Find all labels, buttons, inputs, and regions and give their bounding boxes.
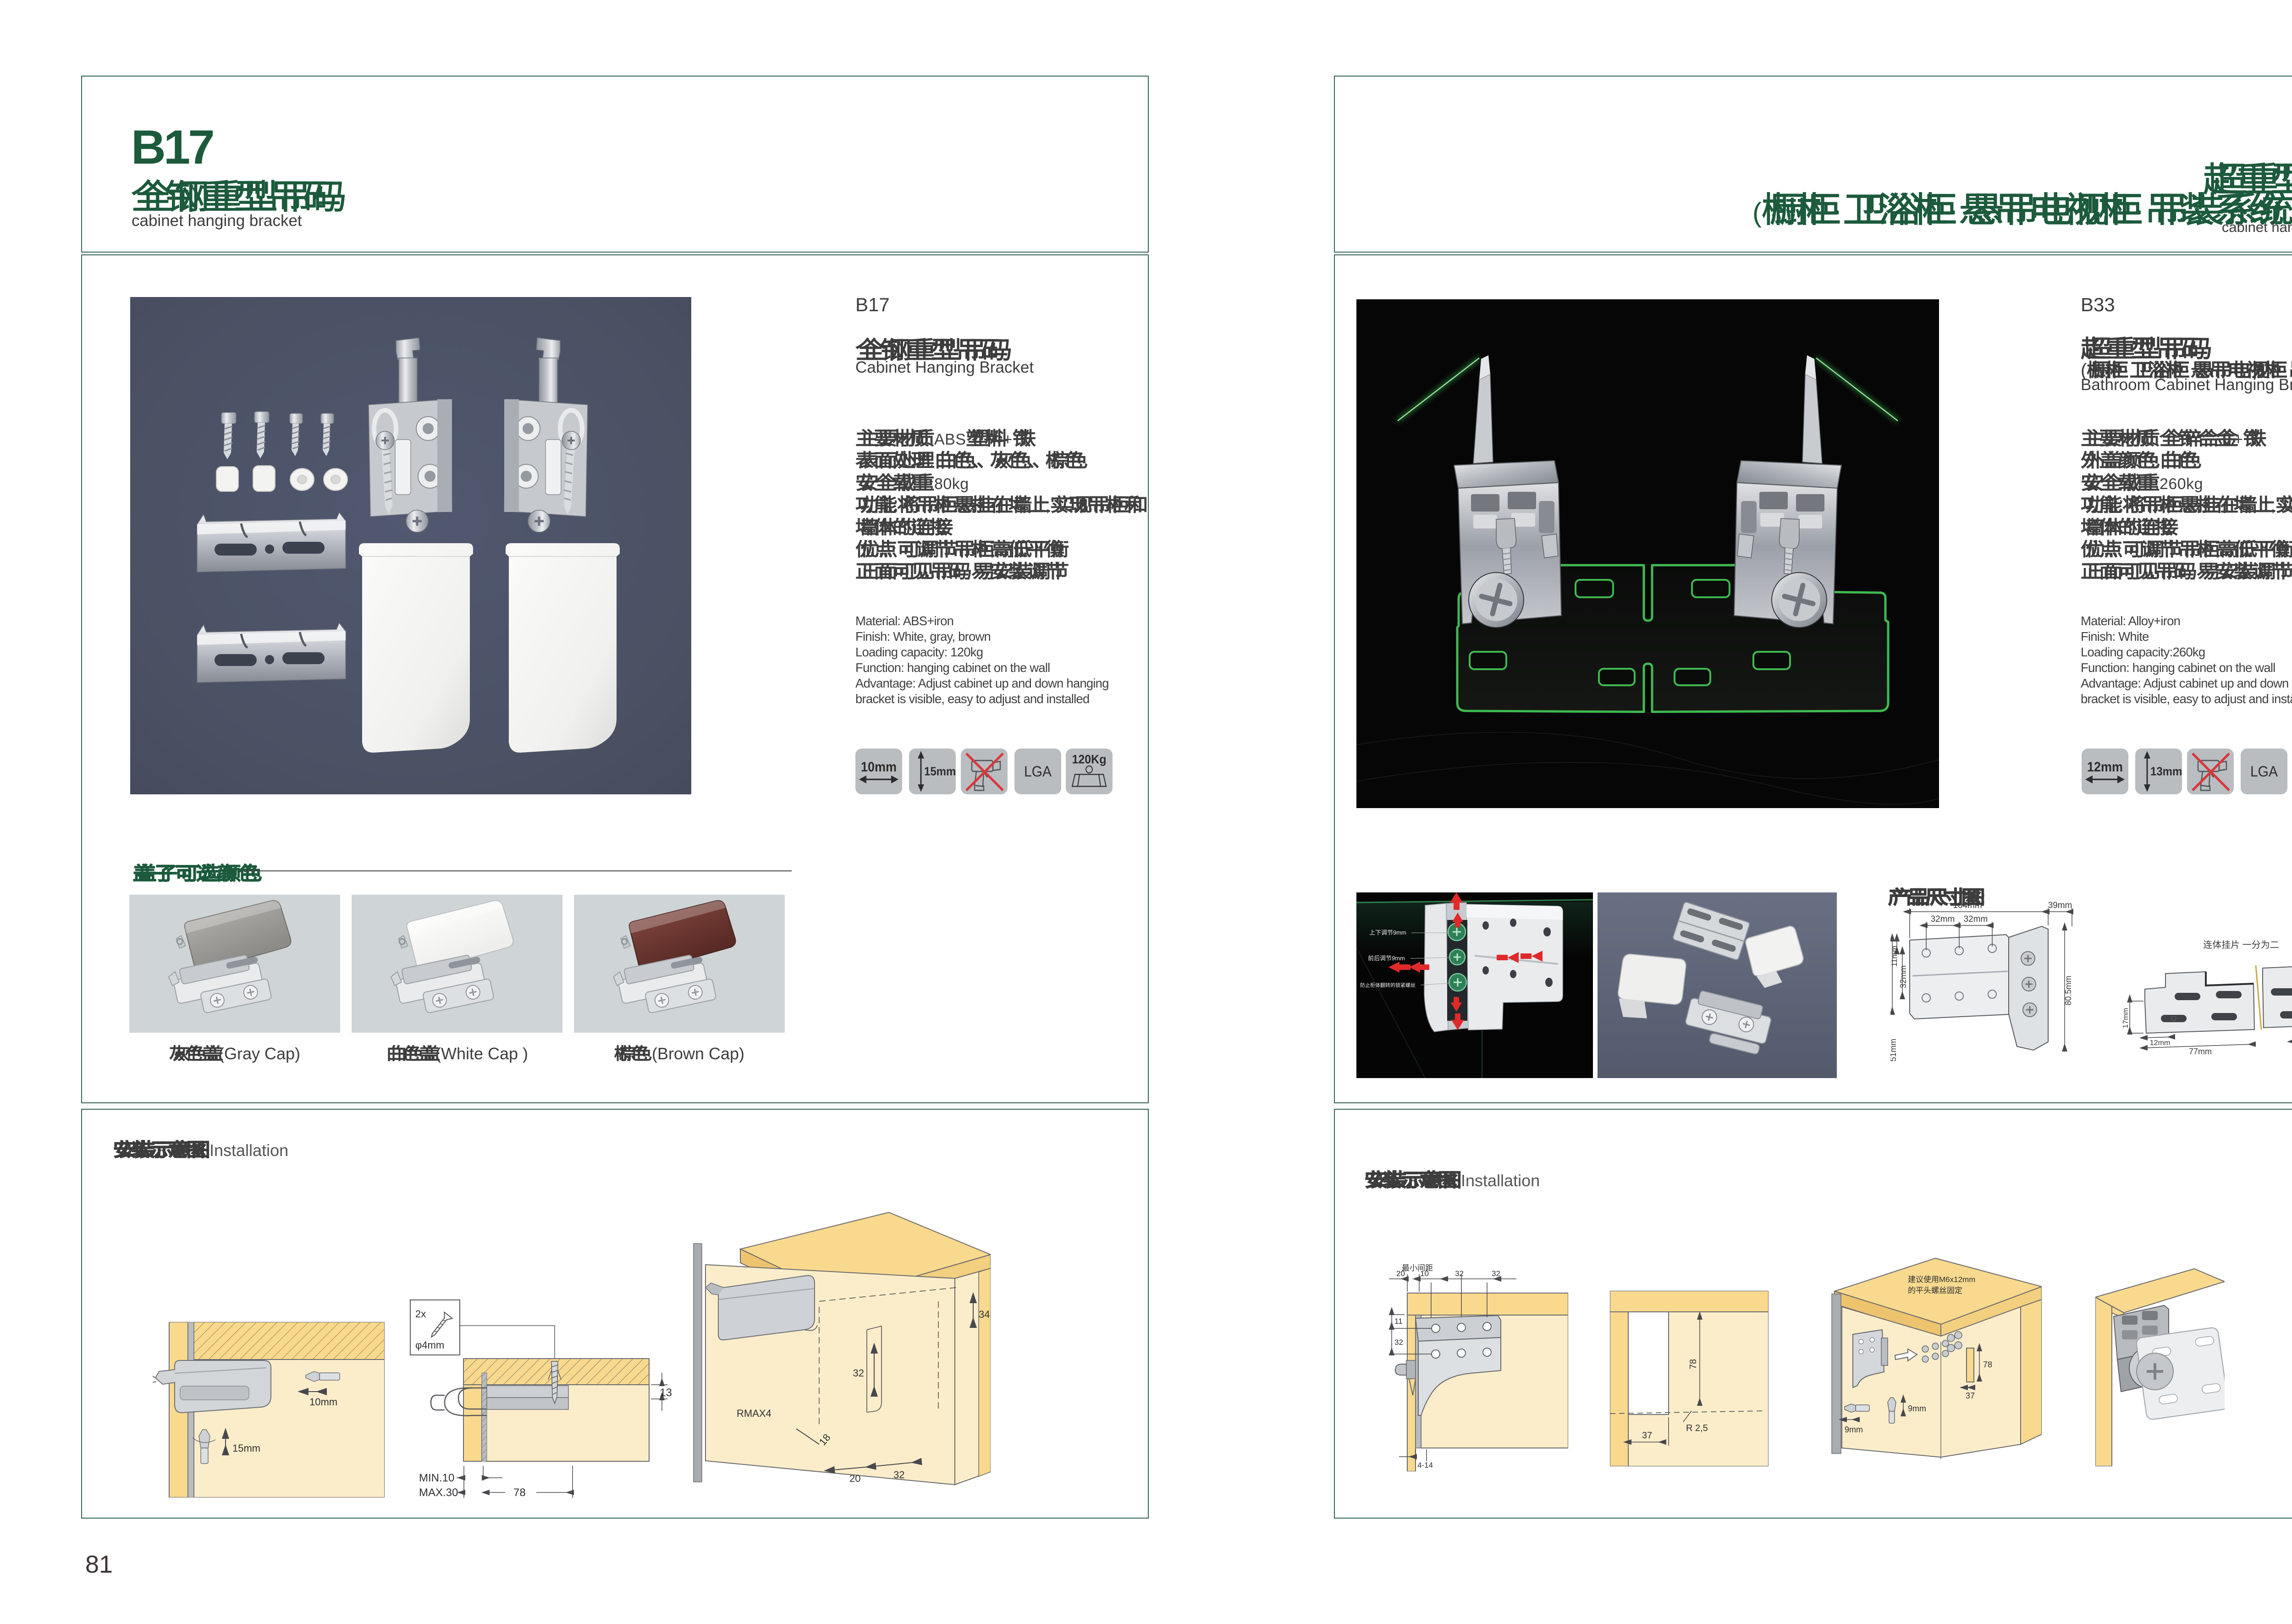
svg-text:32mm: 32mm — [1931, 914, 1955, 924]
svg-text:上下调节9mm: 上下调节9mm — [1369, 929, 1406, 936]
svg-text:32: 32 — [893, 1469, 904, 1481]
svg-text:10mm: 10mm — [861, 759, 897, 774]
svg-text:13: 13 — [660, 1387, 672, 1399]
svg-text:120Kg: 120Kg — [1072, 752, 1107, 766]
svg-text:12mm: 12mm — [2087, 759, 2123, 774]
svg-text:78: 78 — [513, 1486, 526, 1499]
svg-text:11: 11 — [1394, 1317, 1403, 1326]
svg-text:LGA: LGA — [1024, 763, 1052, 780]
svg-text:9mm: 9mm — [1845, 1425, 1863, 1434]
svg-text:建议使用M6x12mm: 建议使用M6x12mm — [1908, 1275, 1975, 1284]
svg-text:17mm: 17mm — [2122, 1008, 2130, 1028]
svg-text:φ4mm: φ4mm — [415, 1339, 444, 1351]
svg-text:104mm: 104mm — [1953, 901, 1982, 910]
svg-text:32mm: 32mm — [1899, 965, 1908, 988]
svg-text:MAX.30: MAX.30 — [419, 1486, 458, 1499]
svg-text:4-14: 4-14 — [1417, 1461, 1433, 1470]
svg-text:20: 20 — [849, 1473, 860, 1484]
svg-text:15mm: 15mm — [232, 1442, 260, 1454]
svg-text:37: 37 — [1642, 1431, 1652, 1441]
svg-text:34: 34 — [979, 1309, 990, 1320]
svg-text:39mm: 39mm — [2048, 901, 2072, 910]
svg-text:32mm: 32mm — [1964, 914, 1988, 924]
svg-text:32: 32 — [853, 1367, 864, 1379]
svg-text:9mm: 9mm — [1908, 1404, 1926, 1413]
svg-text:11mm: 11mm — [1890, 946, 1899, 967]
svg-text:连体挂片 一分为二: 连体挂片 一分为二 — [2203, 940, 2279, 950]
svg-text:前后调节9mm: 前后调节9mm — [1368, 955, 1405, 962]
svg-text:20: 20 — [1396, 1269, 1405, 1278]
svg-text:78: 78 — [1688, 1359, 1698, 1369]
svg-text:80.5mm: 80.5mm — [2064, 975, 2073, 1005]
svg-text:12mm: 12mm — [2150, 1039, 2170, 1047]
svg-text:15mm: 15mm — [924, 765, 956, 778]
svg-text:LGA: LGA — [2250, 763, 2278, 780]
svg-text:10: 10 — [1420, 1269, 1429, 1278]
svg-text:的平头螺丝固定: 的平头螺丝固定 — [1908, 1286, 1962, 1295]
svg-text:13mm: 13mm — [2150, 765, 2182, 778]
svg-text:32: 32 — [1492, 1269, 1500, 1278]
svg-text:32: 32 — [1394, 1338, 1403, 1347]
svg-text:防止柜体翻转的锁紧螺丝: 防止柜体翻转的锁紧螺丝 — [1360, 982, 1416, 988]
svg-text:78: 78 — [1983, 1360, 1992, 1369]
svg-text:R 2,5: R 2,5 — [1686, 1423, 1708, 1433]
svg-text:51mm: 51mm — [1890, 1039, 1898, 1062]
svg-text:2x: 2x — [415, 1308, 426, 1320]
svg-text:32: 32 — [1455, 1269, 1464, 1278]
svg-text:37: 37 — [1966, 1391, 1975, 1400]
svg-text:77mm: 77mm — [2189, 1047, 2212, 1055]
svg-text:MIN.10: MIN.10 — [419, 1472, 454, 1484]
svg-text:RMAX4: RMAX4 — [737, 1408, 771, 1419]
